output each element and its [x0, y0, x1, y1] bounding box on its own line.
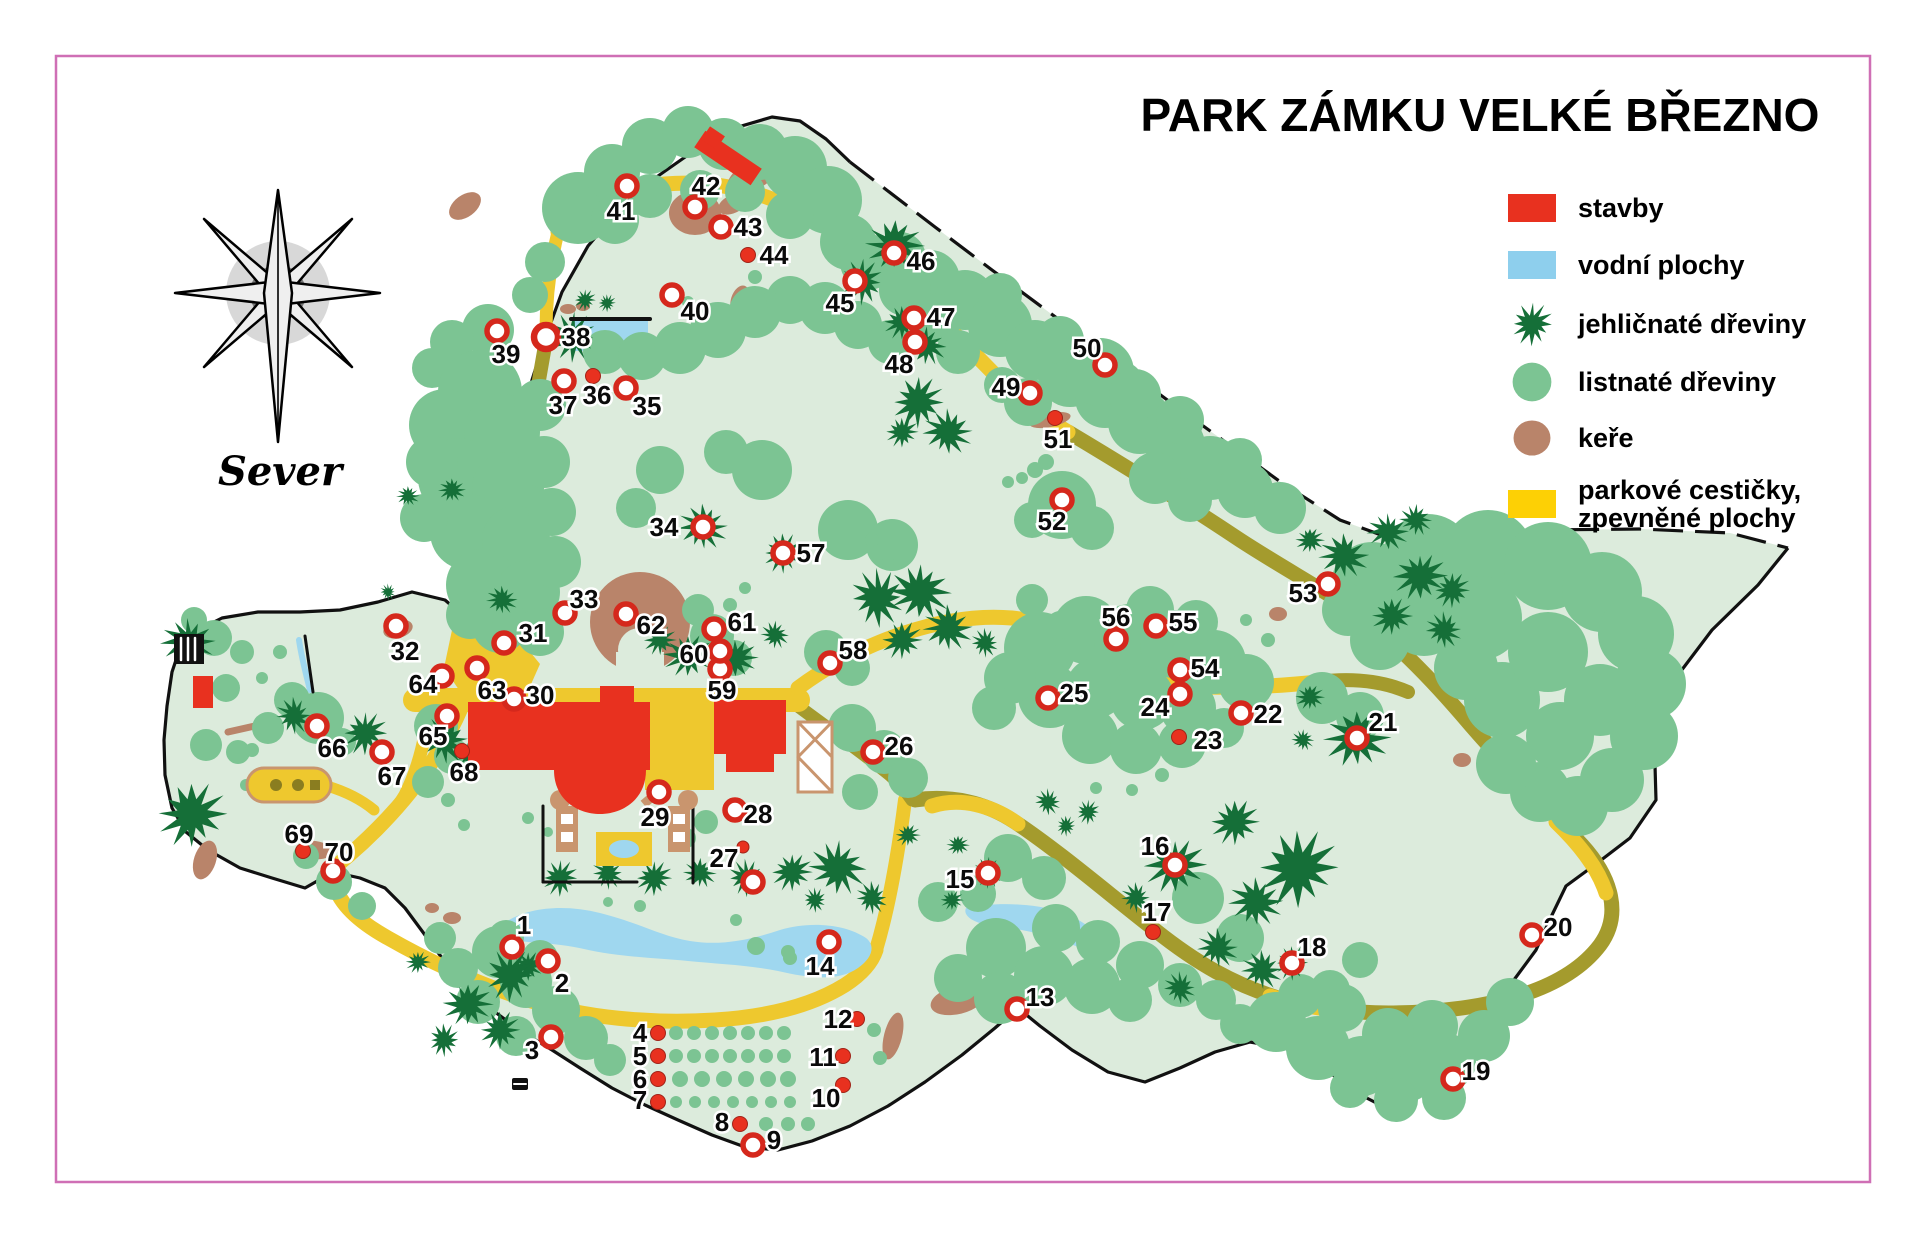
map-marker-54[interactable]: 54 — [1170, 653, 1220, 683]
marker-number: 16 — [1141, 831, 1170, 861]
marker-number: 57 — [797, 538, 826, 568]
paths-swatch-icon — [1508, 490, 1556, 518]
marker-number: 44 — [760, 240, 789, 270]
marker-number: 41 — [607, 196, 636, 226]
map-marker-37[interactable]: 37 — [549, 371, 578, 420]
marker-number: 53 — [1289, 578, 1318, 608]
marker-number: 17 — [1143, 897, 1172, 927]
marker-number: 63 — [478, 675, 507, 705]
marker-number: 33 — [570, 584, 599, 614]
marker-number: 7 — [633, 1085, 647, 1115]
deciduous-tree-icon — [1508, 356, 1556, 408]
legend-item-shrubs: keře — [1508, 412, 1634, 464]
marker-number: 27 — [710, 843, 739, 873]
compass-rose-icon — [175, 190, 380, 442]
marker-number: 49 — [992, 372, 1021, 402]
legend-item-conifers: jehličnaté dřeviny — [1508, 298, 1806, 350]
marker-number: 32 — [391, 636, 420, 666]
marker-number: 38 — [562, 322, 591, 352]
marker-number: 39 — [492, 339, 521, 369]
marker-number: 59 — [708, 675, 737, 705]
marker-number: 54 — [1191, 653, 1220, 683]
marker-number: 60 — [680, 639, 709, 669]
marker-number: 11 — [809, 1042, 837, 1072]
marker-number: 69 — [285, 819, 314, 849]
marker-number: 47 — [927, 302, 956, 332]
marker-number: 48 — [885, 349, 914, 379]
marker-number: 52 — [1038, 506, 1067, 536]
map-marker-38[interactable]: 38 — [534, 322, 590, 352]
marker-number: 30 — [526, 680, 555, 710]
marker-number: 37 — [549, 390, 578, 420]
legend-label: vodní plochy — [1578, 251, 1745, 279]
marker-number: 22 — [1254, 699, 1283, 729]
marker-number: 28 — [744, 799, 773, 829]
marker-number: 56 — [1102, 602, 1131, 632]
legend-item-water: vodní plochy — [1508, 251, 1745, 279]
park-map-canvas: 1234567891011121314151617181920212223242… — [0, 0, 1920, 1255]
marker-number: 21 — [1369, 707, 1398, 737]
marker-number: 50 — [1073, 333, 1102, 363]
park-map-page: 1234567891011121314151617181920212223242… — [0, 0, 1920, 1255]
marker-number: 12 — [824, 1004, 853, 1034]
marker-number: 29 — [641, 802, 670, 832]
marker-number: 65 — [419, 721, 448, 751]
compass-label: Sever — [180, 448, 380, 495]
marker-number: 42 — [692, 171, 721, 201]
marker-number: 51 — [1044, 424, 1073, 454]
page-title: PARK ZÁMKU VELKÉ BŘEZNO — [1040, 88, 1920, 142]
legend-label: keře — [1578, 424, 1634, 452]
legend-item-buildings: stavby — [1508, 194, 1664, 222]
marker-number: 70 — [325, 837, 354, 867]
marker-number: 14 — [806, 951, 835, 981]
marker-number: 9 — [767, 1125, 781, 1155]
marker-number: 40 — [681, 296, 710, 326]
marker-number: 20 — [1544, 912, 1573, 942]
legend-label: listnaté dřeviny — [1578, 368, 1776, 396]
marker-number: 58 — [839, 635, 868, 665]
legend-label: parkové cestičky, zpevněné plochy — [1578, 476, 1801, 533]
marker-number: 24 — [1141, 692, 1170, 722]
marker-number: 23 — [1194, 725, 1223, 755]
marker-number: 13 — [1026, 982, 1055, 1012]
map-marker-59[interactable]: 59 — [708, 659, 737, 705]
marker-number: 19 — [1462, 1056, 1491, 1086]
legend-label: jehličnaté dřeviny — [1578, 310, 1806, 338]
marker-number: 45 — [826, 288, 855, 318]
marker-number: 10 — [812, 1083, 841, 1113]
marker-number: 2 — [555, 968, 569, 998]
marker-number: 64 — [409, 669, 438, 699]
conifer-icon — [1508, 298, 1556, 350]
map-marker-56[interactable]: 56 — [1102, 602, 1131, 649]
marker-number: 3 — [525, 1035, 539, 1065]
legend-item-deciduous: listnaté dřeviny — [1508, 356, 1776, 408]
marker-number: 18 — [1298, 932, 1327, 962]
map-marker-22[interactable]: 22 — [1231, 699, 1282, 729]
map-marker-47[interactable]: 47 — [904, 302, 955, 332]
marker-number: 25 — [1060, 678, 1089, 708]
marker-number: 46 — [907, 246, 936, 276]
marker-number: 55 — [1169, 607, 1198, 637]
marker-number: 67 — [378, 761, 407, 791]
marker-number: 68 — [450, 757, 479, 787]
marker-number: 34 — [650, 512, 679, 542]
buildings-swatch-icon — [1508, 194, 1556, 222]
marker-number: 1 — [517, 910, 531, 940]
legend-item-paths: parkové cestičky, zpevněné plochy — [1508, 476, 1801, 533]
shrub-icon — [1508, 412, 1556, 464]
marker-number: 61 — [728, 607, 757, 637]
water-swatch-icon — [1508, 251, 1556, 279]
map-marker-39[interactable]: 39 — [487, 321, 520, 369]
marker-number: 43 — [734, 212, 763, 242]
marker-number: 8 — [715, 1107, 729, 1137]
marker-number: 26 — [885, 731, 914, 761]
legend-label: stavby — [1578, 194, 1664, 222]
marker-number: 66 — [318, 733, 347, 763]
marker-number: 15 — [946, 864, 975, 894]
map-marker-57[interactable]: 57 — [773, 538, 825, 568]
marker-number: 62 — [637, 610, 666, 640]
marker-number: 31 — [519, 618, 548, 648]
marker-number: 36 — [583, 380, 612, 410]
map-marker-43[interactable]: 43 — [711, 212, 762, 242]
marker-number: 35 — [633, 391, 662, 421]
